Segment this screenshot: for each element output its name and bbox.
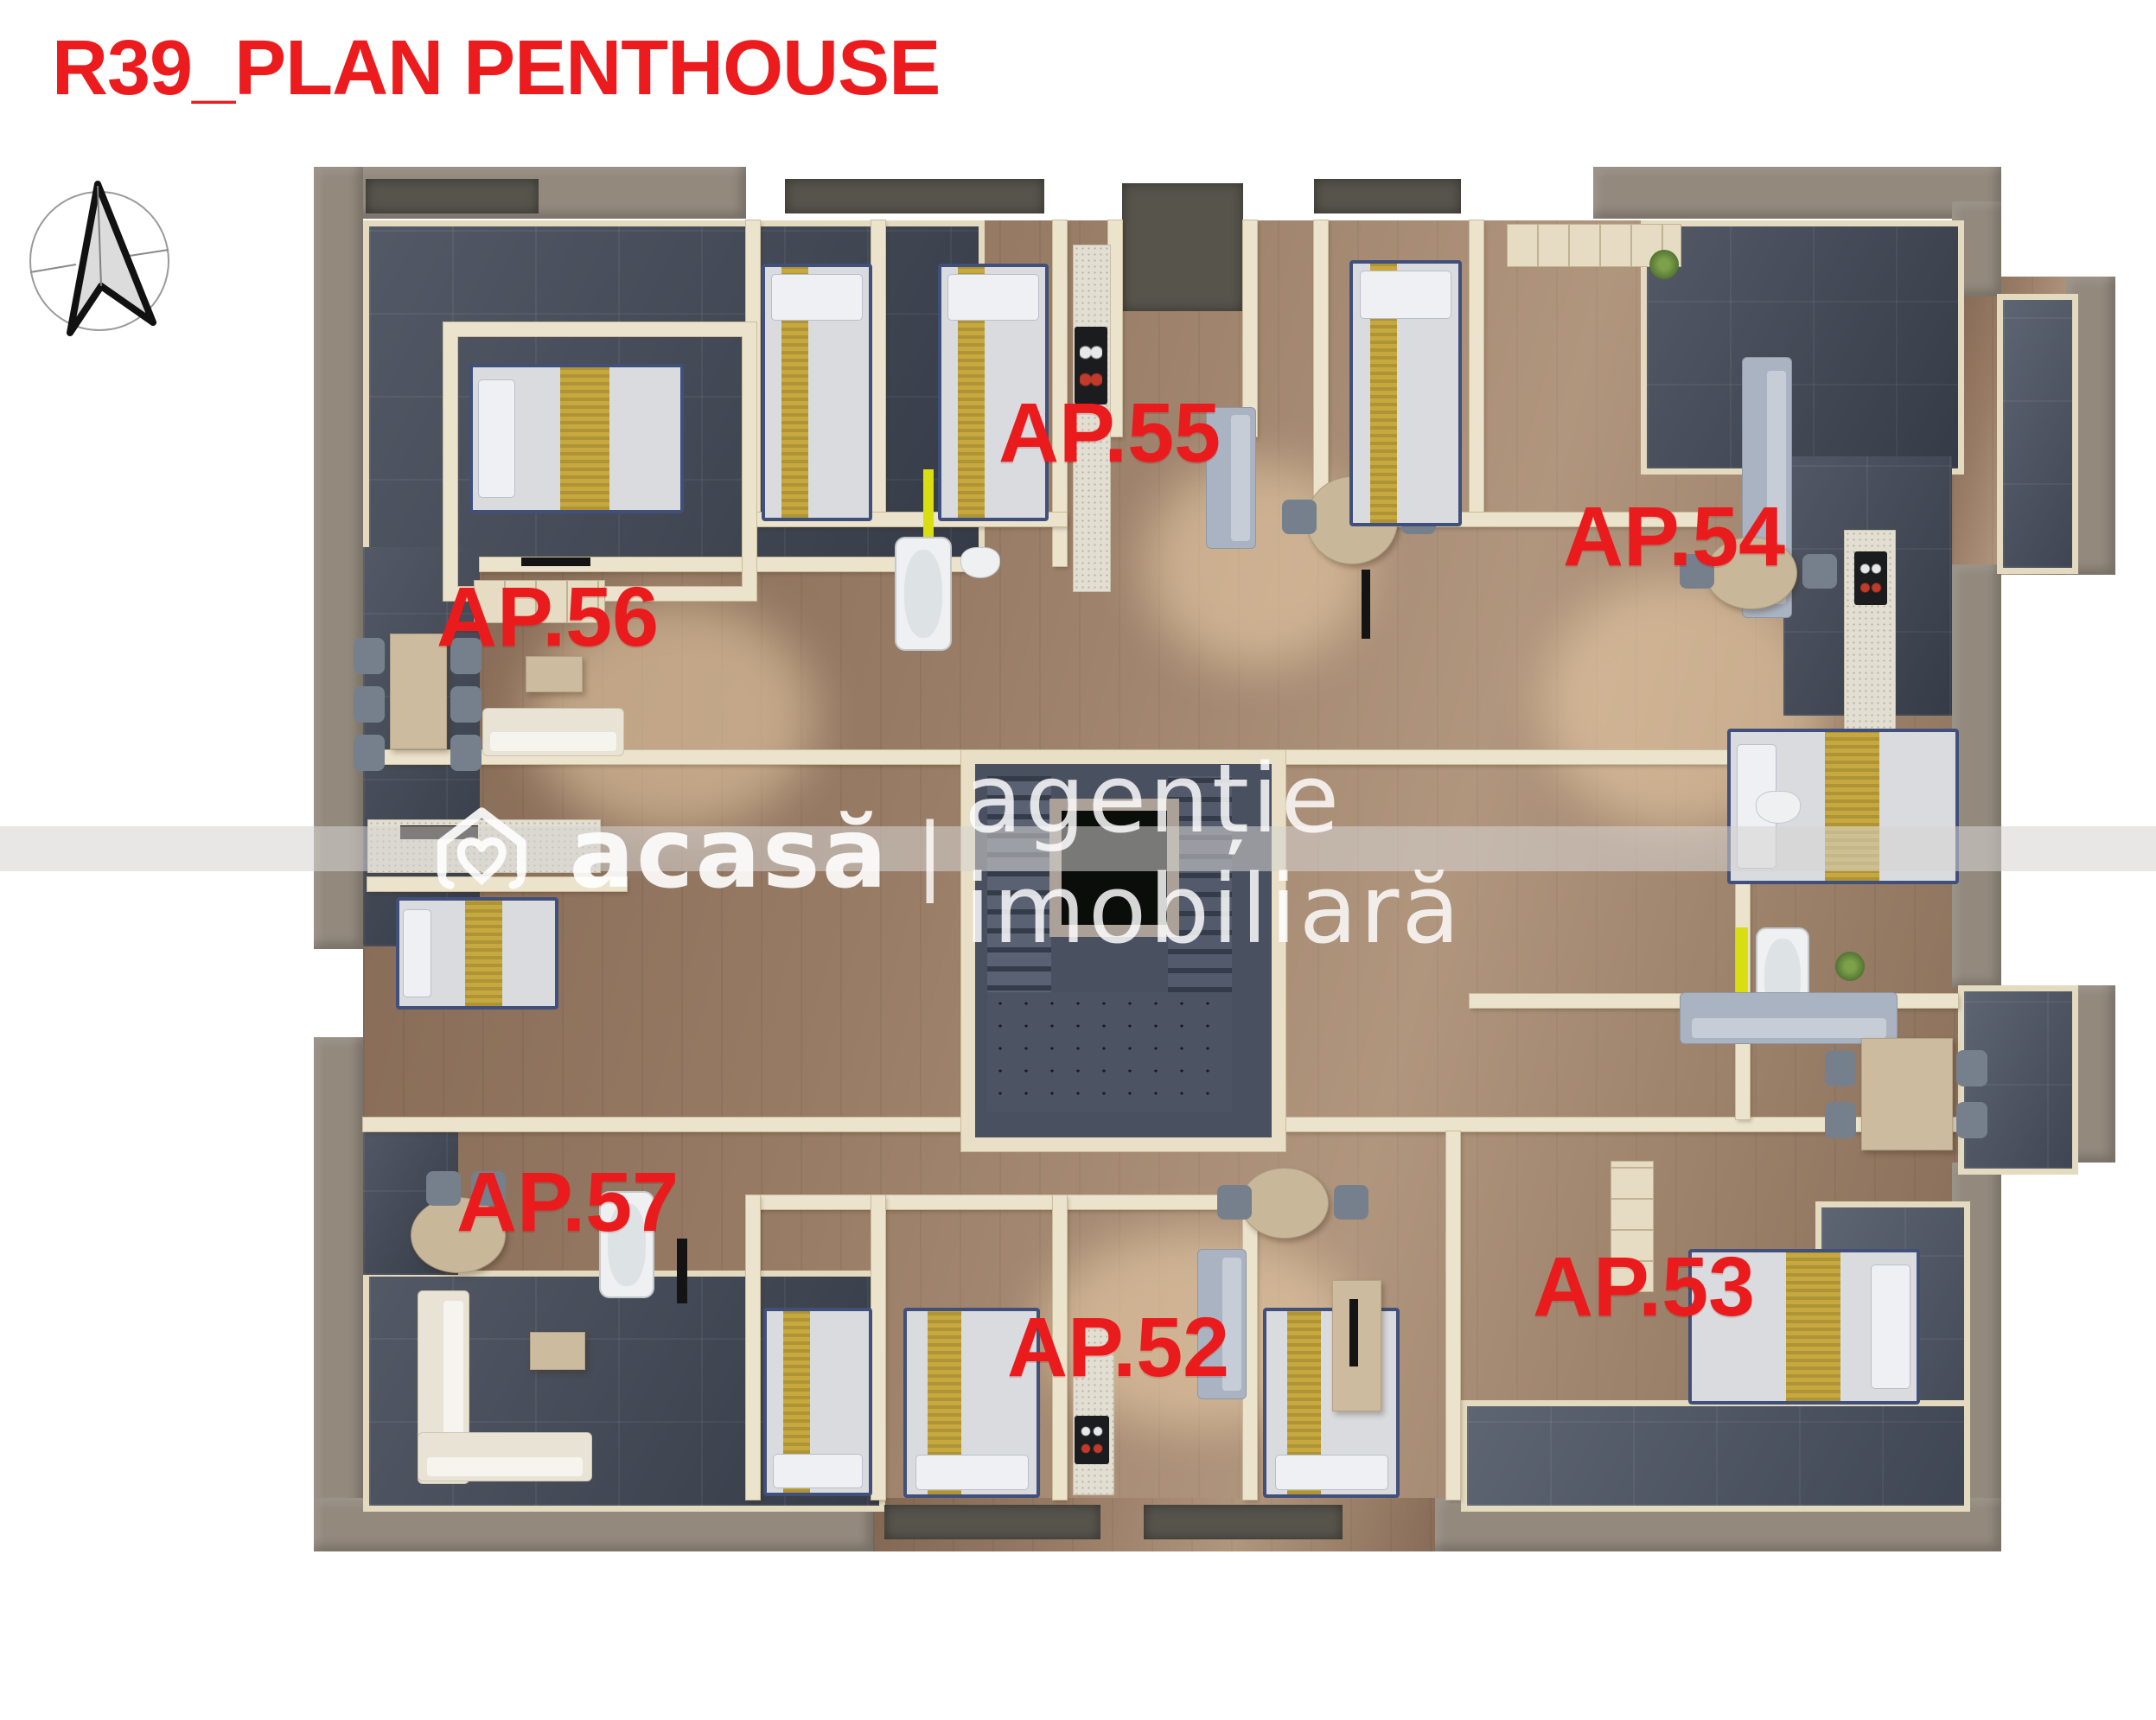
chair: [1802, 554, 1837, 589]
dining-table: [1861, 1038, 1953, 1150]
cooktop: [1075, 1416, 1109, 1464]
wall: [363, 750, 973, 764]
wall: [871, 1195, 885, 1500]
chair: [1334, 1185, 1368, 1220]
toilet: [960, 547, 1000, 578]
roof-slab: [785, 179, 1044, 213]
round-dining-table: [1241, 1168, 1329, 1239]
wall: [363, 1118, 973, 1131]
parapet-wall: [314, 1037, 363, 1551]
parapet-wall: [1593, 167, 2001, 219]
bathtub: [895, 537, 952, 651]
apartment-label-ap56: AP.56: [437, 569, 659, 666]
terrace-top-right: [1641, 220, 1964, 475]
wall: [1258, 1118, 1958, 1131]
wall: [1243, 220, 1257, 436]
chair: [426, 1171, 461, 1206]
apartment-label-ap55: AP.55: [998, 385, 1221, 481]
watermark-separator: |: [918, 803, 941, 906]
north-arrow-icon: [22, 177, 177, 337]
wall: [1446, 1131, 1460, 1500]
apartment-label-ap54: AP.54: [1563, 488, 1785, 585]
coffee-table: [530, 1332, 585, 1370]
tv-console: [1362, 570, 1370, 639]
bed: [1349, 260, 1462, 526]
tv-console: [521, 557, 590, 566]
roof-slab: [1314, 179, 1461, 213]
bed: [763, 1308, 872, 1496]
sofa: [1680, 992, 1898, 1044]
sofa: [418, 1432, 592, 1481]
apartment-label-ap53: AP.53: [1533, 1239, 1755, 1335]
entry-roof: [1122, 183, 1243, 311]
page-title: R39_PLAN PENTHOUSE: [52, 24, 940, 113]
cooktop: [1854, 551, 1887, 605]
roof-slab: [884, 1505, 1100, 1539]
plant: [1649, 250, 1679, 279]
parapet-wall: [1952, 564, 2001, 988]
house-heart-icon: [425, 789, 538, 919]
terrace-right-wing: [1997, 294, 2078, 574]
chair: [1217, 1185, 1252, 1220]
apartment-label-ap52: AP.52: [1007, 1299, 1229, 1396]
terrace-bottom-right: [1461, 1400, 1970, 1512]
tv-console: [1349, 1299, 1358, 1366]
watermark: acasă | agenție imobiliară: [425, 776, 1774, 932]
roof-slab: [1144, 1505, 1343, 1539]
wall: [1470, 220, 1483, 519]
bed: [762, 264, 872, 521]
dining-chairs: [354, 638, 385, 674]
watermark-brand: acasă: [569, 798, 889, 910]
wall: [871, 220, 885, 519]
wall: [746, 1195, 760, 1500]
dining-chairs: [1956, 1050, 1987, 1086]
plant: [1835, 952, 1865, 981]
core-landing: [987, 992, 1232, 1112]
wall: [1314, 220, 1328, 519]
sofa: [482, 708, 624, 756]
watermark-tagline: agenție imobiliară: [964, 743, 1774, 965]
roof-slab: [366, 179, 539, 213]
wall: [746, 1195, 1256, 1209]
bed: [469, 364, 684, 513]
chair: [1282, 500, 1317, 534]
dining-chairs: [1825, 1050, 1856, 1086]
apartment-label-ap57: AP.57: [456, 1154, 679, 1251]
